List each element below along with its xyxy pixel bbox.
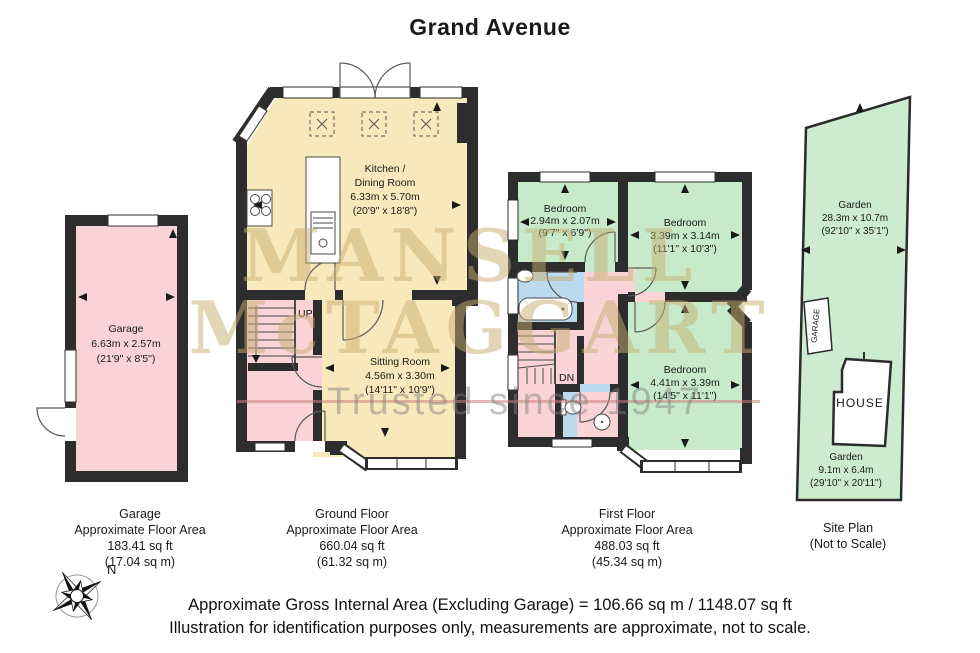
garage-caption-title: Garage [55,506,225,522]
first-floor-plan: Bedroom 2.94m x 2.07m (9'7" x 6'9") Bedr… [495,160,765,485]
ground-caption-sqm: (61.32 sq m) [262,554,442,570]
bedroom1-name: Bedroom [544,203,587,215]
ground-caption-sub: Approximate Floor Area [262,522,442,538]
ground-caption-title: Ground Floor [262,506,442,522]
ground-floor-caption: Ground Floor Approximate Floor Area 660.… [262,506,442,570]
site-caption-sub: (Not to Scale) [788,536,908,552]
garden-rear-metric: 28.3m x 10.7m [822,213,888,224]
garden-rear-imperial: (92'10" x 35'1") [821,226,888,237]
floorplan-page: Grand Avenue Garage 6.63m x 2.57m (21'9"… [0,0,980,653]
sitting-room-imperial: (14'11" x 10'9") [365,384,435,396]
kitchen-sitting-opening [340,290,412,300]
garden-front-metric: 9.1m x 6.4m [818,465,873,476]
cooker-icon [247,190,272,226]
kitchen-metric: 6.33m x 5.70m [350,191,420,203]
bathtub-icon [519,298,572,320]
site-caption-title: Site Plan [788,520,908,536]
bedroom3-name: Bedroom [664,364,707,376]
first-caption-title: First Floor [537,506,717,522]
bedroom-3 [628,302,742,450]
kitchen-island-icon [306,157,340,263]
toilet-icon [561,400,581,415]
sitting-room-name: Sitting Room [370,356,430,368]
bedroom3-metric: 4.41m x 3.39m [650,377,720,389]
garden-front-imperial: (29'10" x 20'11") [810,478,882,489]
garage-room-metric: 6.63m x 2.57m [91,338,161,350]
first-caption-sub: Approximate Floor Area [537,522,717,538]
garage-door-arc [37,408,65,436]
first-floor-caption: First Floor Approximate Floor Area 488.0… [537,506,717,570]
hall-sitting-opening [313,355,322,390]
bathroom-sink-icon [517,270,533,282]
bedroom2-name: Bedroom [664,217,707,229]
footer-area-summary: Approximate Gross Internal Area (Excludi… [0,596,980,615]
garage-room-name: Garage [108,323,143,335]
sitting-room-metric: 4.56m x 3.30m [365,370,435,382]
kitchen-hall-opening [305,290,335,300]
page-title: Grand Avenue [0,14,980,41]
garden-rear-name: Garden [838,200,871,211]
ground-caption-sqft: 660.04 sq ft [262,538,442,554]
garage-door-opening [64,408,76,441]
garage-caption: Garage Approximate Floor Area 183.41 sq … [55,506,225,570]
bedroom3-imperial: (14'5" x 11'1") [653,390,717,402]
ground-floor-plan: Kitchen / Dining Room 6.33m x 5.70m (20'… [225,45,490,500]
garage-caption-sub: Approximate Floor Area [55,522,225,538]
garage-floor-plan: Garage 6.63m x 2.57m (21'9" x 8'5") [30,205,200,495]
first-caption-sqft: 488.03 sq ft [537,538,717,554]
kitchen-imperial: (20'9" x 18'8") [353,205,418,217]
bedroom2-imperial: (11'1" x 10'3") [653,243,717,255]
french-doors [340,63,410,98]
footer-disclaimer: Illustration for identification purposes… [0,619,980,638]
front-door-opening [295,441,325,452]
kitchen-label-1: Kitchen / [365,163,406,175]
wc-sink-icon [594,414,610,430]
stairs-down-label: DN [559,372,574,384]
bedroom1-metric: 2.94m x 2.07m [530,215,600,227]
garage-room-imperial: (21'9" x 8'5") [97,353,156,365]
garage-caption-sqm: (17.04 sq m) [55,554,225,570]
stairs-up-label: UP [298,308,313,320]
site-plan-caption: Site Plan (Not to Scale) [788,520,908,552]
bedroom2-metric: 3.39m x 3.14m [650,230,720,242]
garage-window-top [108,215,158,226]
garage-caption-sqft: 183.41 sq ft [55,538,225,554]
first-caption-sqm: (45.34 sq m) [537,554,717,570]
site-house-label: HOUSE [836,396,884,410]
kitchen-label-2: Dining Room [355,177,416,189]
bedroom1-imperial: (9'7" x 6'9") [539,227,592,239]
garage-window-left [65,350,76,402]
site-plan: GARAGE HOUSE Garden 28.3m x 10.7m (92'10… [780,85,960,535]
garden-front-name: Garden [829,452,862,463]
